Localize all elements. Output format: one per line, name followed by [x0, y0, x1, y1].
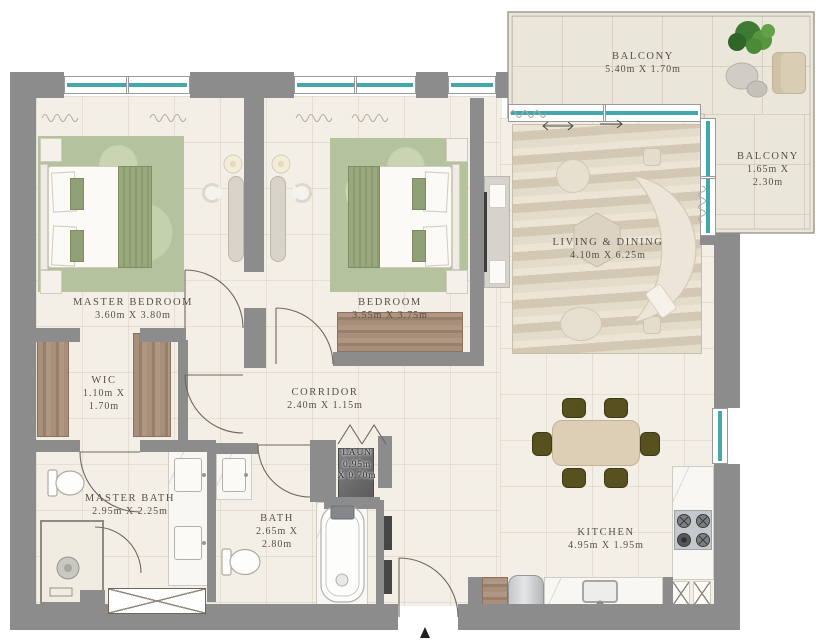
bath-sink [222, 458, 246, 492]
tv-console-drawer [489, 184, 506, 208]
master-bed-accent-pillow [70, 230, 84, 262]
room-label-living-dining: LIVING & DINING4.10m X 6.25m [553, 236, 664, 262]
wall [324, 497, 380, 509]
room-label-laundry: LAUN0.95m X 0.70m [338, 448, 377, 483]
wall [458, 604, 714, 630]
dining-table [552, 420, 640, 466]
room-label-master-bedroom: MASTER BEDROOM3.60m X 3.80m [73, 296, 193, 322]
window-dining [712, 408, 728, 464]
kitchen-cabinet-x [672, 581, 690, 606]
master-bath-sink [174, 458, 202, 492]
kitchen-cabinet-x [693, 581, 711, 606]
room-label-wic: WIC1.10m X 1.70m [83, 374, 125, 413]
master-bed-blanket [118, 166, 152, 268]
pouf [556, 159, 590, 193]
wall [10, 72, 36, 630]
window-small [448, 76, 496, 94]
window-living-balcony [508, 104, 701, 122]
bedroom-desk [270, 176, 286, 262]
floor-plan: MASTER BEDROOM3.60m X 3.80m BEDROOM3.55m… [0, 0, 828, 640]
window-bedroom [294, 76, 416, 94]
kitchen-cabinet-wood [482, 577, 508, 606]
master-nightstand [40, 270, 62, 294]
wic-wardrobe-left [37, 333, 69, 437]
pouf [560, 307, 602, 341]
window-living-balcony-east [700, 118, 716, 236]
master-bed-headboard [40, 164, 48, 270]
bedroom-nightstand [446, 270, 468, 294]
wall [333, 352, 470, 366]
hall-cabinet [384, 560, 392, 594]
tv-console-drawer [489, 260, 506, 284]
room-label-bath: BATH2.65m X 2.80m [256, 512, 298, 551]
wall [36, 604, 398, 630]
room-label-kitchen: KITCHEN4.95m X 1.95m [568, 526, 644, 552]
wall [378, 436, 392, 488]
wall-living-bedroom [470, 98, 484, 366]
wall-between-bedrooms [244, 72, 264, 272]
bedroom-desk-chair [292, 183, 312, 203]
dining-chair [562, 468, 586, 488]
bedroom-bed-blanket [348, 166, 380, 268]
wall [190, 72, 294, 98]
shaft-void-box [108, 588, 206, 614]
master-bed-accent-pillow [70, 178, 84, 210]
wall [714, 464, 740, 630]
wall [214, 443, 258, 454]
wic-wardrobe-right [133, 333, 171, 437]
master-bath-sink [174, 526, 202, 560]
wall [714, 233, 740, 408]
bedroom-nightstand [446, 138, 468, 162]
side-table [643, 148, 661, 166]
wall [80, 590, 105, 604]
bedroom-accent-pillow [412, 178, 426, 210]
room-label-master-bath: MASTER BATH2.95m X 2.25m [85, 492, 175, 518]
wall [244, 308, 266, 368]
window-master-bedroom [64, 76, 190, 94]
kitchen-sink [582, 580, 618, 603]
master-nightstand [40, 138, 62, 162]
wall [376, 500, 384, 604]
stove [674, 510, 712, 550]
side-table [643, 316, 661, 334]
dining-chair [532, 432, 552, 456]
balcony-lounge-chair [772, 52, 806, 94]
master-desk [228, 176, 244, 262]
wall [310, 440, 336, 502]
room-label-corridor: CORRIDOR2.40m X 1.15m [287, 386, 363, 412]
wall [663, 577, 673, 606]
bedroom-bed-pillow [423, 225, 449, 266]
bedroom-bed-pillow [423, 171, 449, 212]
dining-chair [640, 432, 660, 456]
room-label-bedroom: BEDROOM3.55m X 3.75m [352, 296, 428, 322]
dining-chair [562, 398, 586, 418]
wall [468, 577, 482, 606]
wall [140, 440, 208, 452]
room-label-balcony-top: BALCONY5.40m X 1.70m [605, 50, 681, 76]
bedroom-bed-headboard [452, 164, 460, 270]
dining-chair [604, 398, 628, 418]
wall [36, 440, 80, 452]
dining-chair [604, 468, 628, 488]
bedroom-accent-pillow [412, 230, 426, 262]
hall-cabinet [384, 516, 392, 550]
wall [36, 328, 80, 342]
master-desk-chair [202, 183, 222, 203]
wall [416, 72, 448, 98]
bathtub-slab [316, 502, 368, 606]
wall [207, 440, 216, 602]
wall [178, 340, 188, 444]
room-label-balcony-right: BALCONY1.65m X 2.30m [737, 150, 799, 189]
fridge [508, 575, 544, 606]
wall [496, 72, 508, 98]
